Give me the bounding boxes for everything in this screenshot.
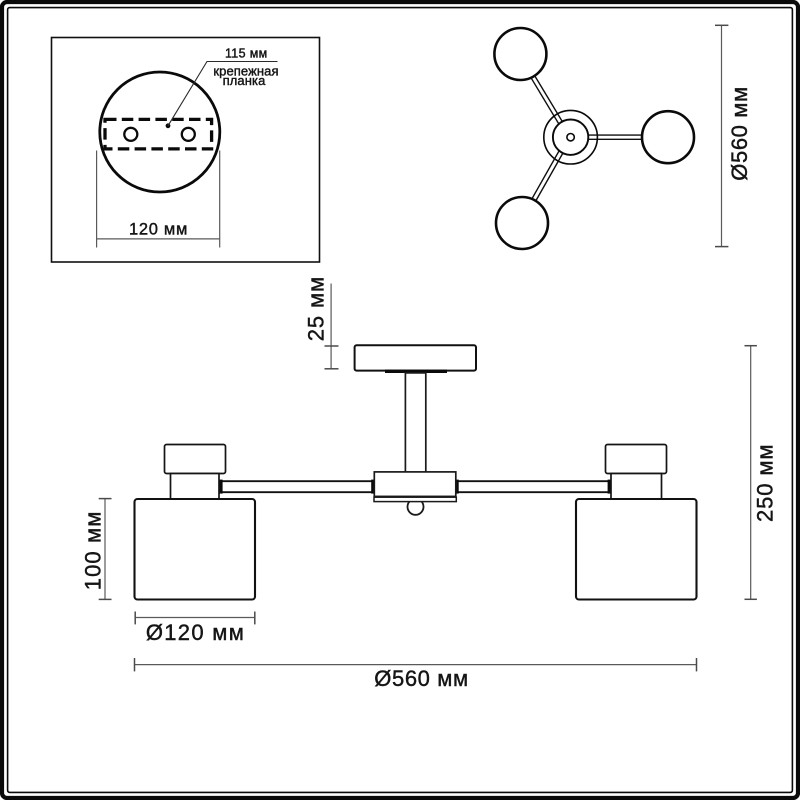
svg-text:Ø560 мм: Ø560 мм — [727, 86, 752, 180]
svg-text:планка: планка — [223, 73, 267, 88]
svg-text:250 мм: 250 мм — [753, 444, 778, 522]
svg-text:120 мм: 120 мм — [129, 221, 188, 239]
svg-text:25 мм: 25 мм — [304, 276, 329, 341]
svg-text:Ø120 мм: Ø120 мм — [146, 620, 245, 645]
svg-text:100 мм: 100 мм — [80, 511, 105, 591]
svg-text:115 мм: 115 мм — [225, 47, 268, 61]
svg-text:Ø560 мм: Ø560 мм — [374, 666, 468, 691]
